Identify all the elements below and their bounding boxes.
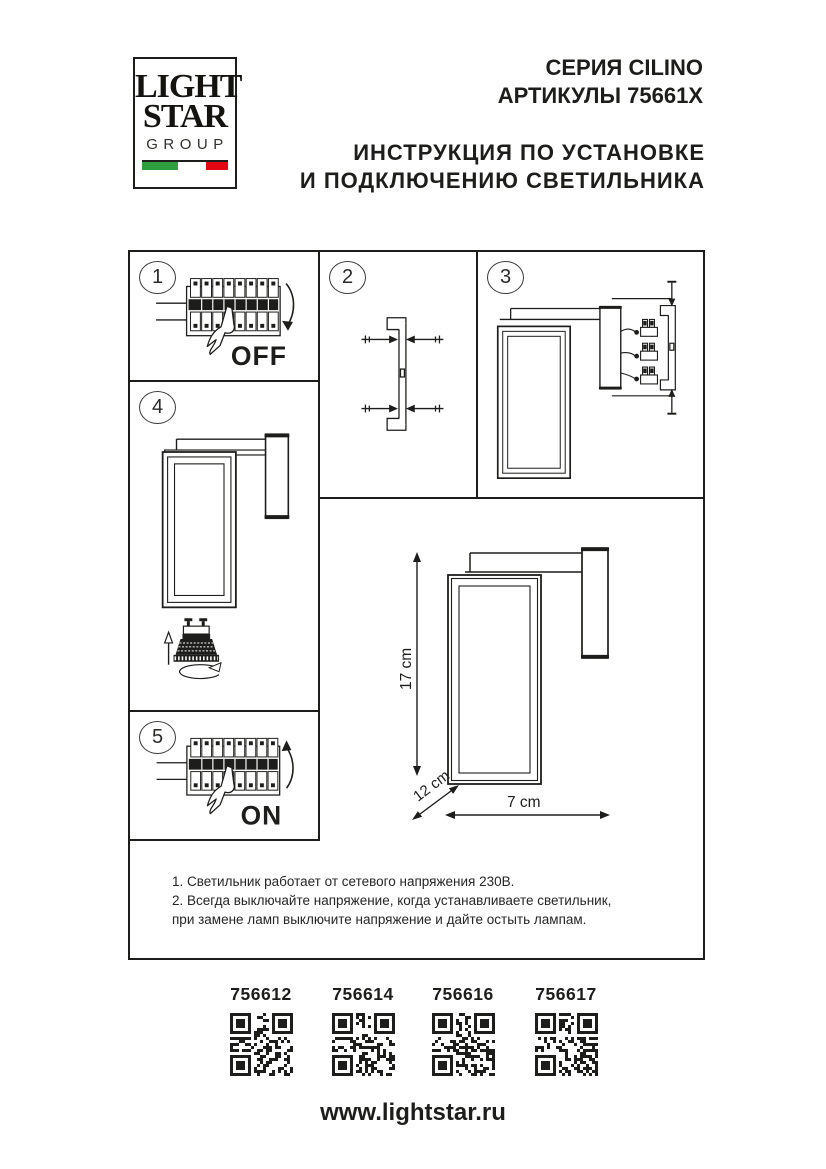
gu10-bulb-icon (174, 618, 220, 662)
note-line-3: при замене ламп выключите напряжение и д… (172, 910, 611, 929)
panel-step-1: 1 (130, 252, 320, 382)
step-badge-4: 4 (139, 391, 176, 424)
qr-code (332, 1013, 395, 1076)
step-number-2: 2 (342, 266, 353, 289)
instruction-sheet: { "header": { "logo": { "line1": "LIGHT"… (0, 0, 826, 1169)
notes: 1. Светильник работает от сетевого напря… (172, 872, 611, 929)
qr-code (535, 1013, 598, 1076)
step-number-4: 4 (152, 396, 163, 419)
diagram-frame: 1 (128, 250, 705, 960)
series-title: СЕРИЯ CILINO (498, 54, 703, 82)
breaker-panel-icon (156, 279, 280, 336)
italy-flag-icon (142, 160, 228, 170)
qr-code (230, 1013, 293, 1076)
breaker-panel-icon (157, 738, 280, 795)
panel-step-4: 4 (130, 382, 320, 712)
height-dimension-label: 17 cm (398, 648, 415, 690)
lightstar-logo: LIGHT STAR GROUP (133, 57, 237, 189)
wall-lamp-icon (163, 434, 290, 607)
wire-leads-icon (621, 329, 636, 379)
step-badge-5: 5 (139, 721, 176, 754)
off-label: OFF (231, 341, 287, 371)
mounting-bracket-icon (387, 318, 406, 431)
instruction-title-line1: ИНСТРУКЦИЯ ПО УСТАНОВКЕ (300, 139, 705, 167)
qr-article-label: 756612 (219, 984, 303, 1005)
panel-step-5: 5 (130, 712, 320, 841)
wall-lamp-icon (498, 307, 622, 479)
step-number-1: 1 (152, 266, 163, 289)
website-footer: www.lightstar.ru (0, 1099, 826, 1127)
wall-bracket-icon (660, 306, 675, 390)
step4-lamp-bulb-diagram (130, 382, 318, 710)
logo-word-star: STAR (135, 102, 235, 132)
dimension-diagram: 17 cm 7 cm 12 cm (385, 510, 705, 840)
insert-arrow-icon (165, 632, 173, 665)
qr-code (432, 1013, 495, 1076)
qr-item-756614: 756614 (321, 984, 405, 1081)
step-badge-1: 1 (139, 261, 176, 294)
step-badge-3: 3 (487, 261, 524, 294)
step-number-5: 5 (152, 726, 163, 749)
articles-title: АРТИКУЛЫ 75661X (498, 82, 703, 110)
qr-article-label: 756616 (421, 984, 505, 1005)
flag-white-stripe (178, 162, 206, 170)
dimension-drawing-svg: 17 cm 7 cm 12 cm (385, 510, 705, 840)
flag-green-stripe (142, 162, 178, 170)
width-dimension (445, 811, 610, 819)
qr-article-label: 756617 (524, 984, 608, 1005)
switch-up-arrow-icon (286, 746, 293, 788)
panel-step-2: 2 (320, 252, 478, 499)
wall-lamp-icon (448, 548, 609, 784)
step-number-3: 3 (500, 266, 511, 289)
on-label: ON (241, 800, 283, 830)
note-line-1: 1. Светильник работает от сетевого напря… (172, 872, 611, 891)
step-badge-2: 2 (329, 261, 366, 294)
qr-item-756616: 756616 (421, 984, 505, 1081)
logo-word-group: GROUP (140, 136, 235, 153)
panel-step-3: 3 (478, 252, 703, 499)
qr-item-756617: 756617 (524, 984, 608, 1081)
qr-item-756612: 756612 (219, 984, 303, 1081)
terminal-blocks-icon (641, 319, 658, 383)
qr-article-label: 756614 (321, 984, 405, 1005)
note-line-2: 2. Всегда выключайте напряжение, когда у… (172, 891, 611, 910)
instruction-title: ИНСТРУКЦИЯ ПО УСТАНОВКЕ И ПОДКЛЮЧЕНИЮ СВ… (300, 139, 705, 195)
width-dimension-label: 7 cm (507, 794, 541, 811)
rotation-arrow-icon (180, 663, 221, 679)
instruction-title-line2: И ПОДКЛЮЧЕНИЮ СВЕТИЛЬНИКА (300, 167, 705, 195)
series-header: СЕРИЯ CILINO АРТИКУЛЫ 75661X (498, 54, 703, 110)
flag-red-stripe (206, 162, 228, 170)
switch-down-arrow-icon (286, 284, 294, 326)
